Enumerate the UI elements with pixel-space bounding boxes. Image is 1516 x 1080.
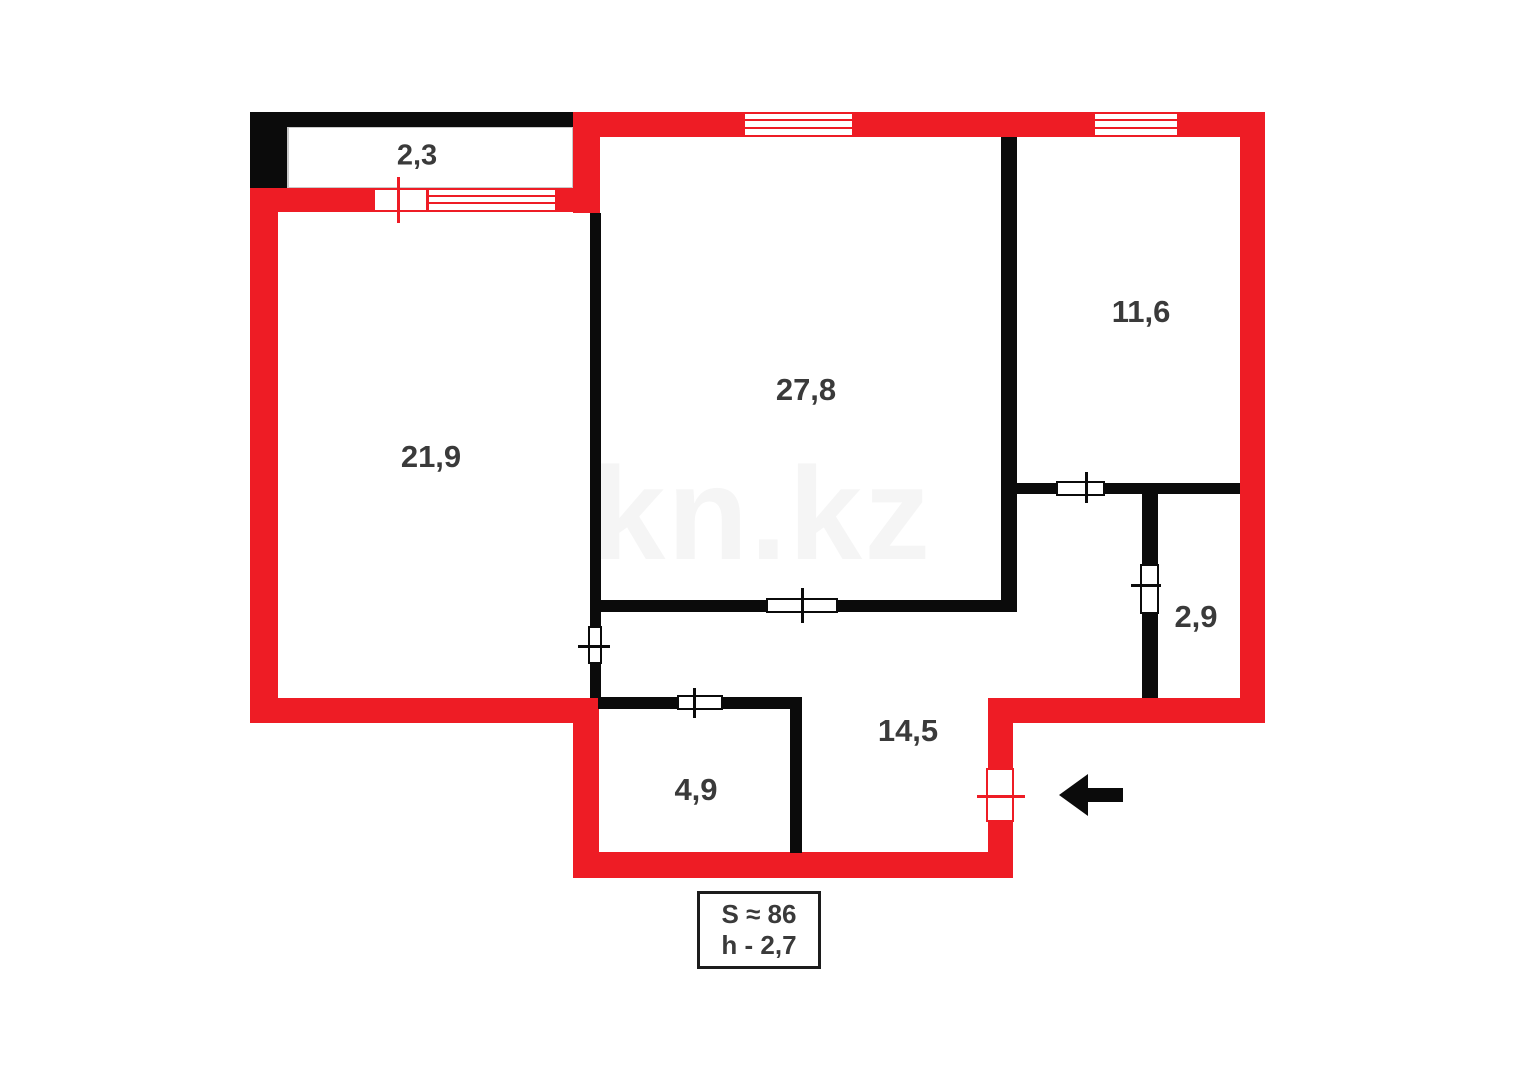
room-label-bedroom: 11,6 [1112,294,1171,330]
room-label-balcony: 2,3 [397,140,437,173]
info-box: S ≈ 86 h - 2,7 [697,891,821,969]
wall-kitchen-right [790,697,802,853]
door-closet-icon [1140,564,1159,614]
window-mainroom-icon [745,112,852,137]
wall-exterior-bottom [573,852,1013,878]
watermark-text: kn.kz [592,448,932,580]
room-label-hallway: 14,5 [878,713,938,749]
entrance-arrow-icon [1059,772,1125,823]
info-area-text: S ≈ 86 [722,900,797,929]
room-label-closet: 2,9 [1174,599,1217,635]
door-mainroom-tick-icon [801,588,804,623]
floor-plan: kn.kz 2,3 21,9 27,8 11,6 2,9 14,5 4,9 [0,0,1516,1080]
wall-bedroom-bottom [1001,483,1240,494]
wall-balcony-top [250,112,573,127]
wall-exterior-right [1240,112,1265,723]
wall-exterior-left [250,188,278,723]
door-bedroom-tick-icon [1085,472,1088,503]
door-balcony-tick-icon [397,177,400,223]
door-entrance-tick-icon [977,795,1025,798]
door-balcony-icon [373,188,428,212]
room-label-living-room: 21,9 [401,439,461,475]
door-closet-tick-icon [1131,584,1161,587]
door-kitchen-icon [677,695,723,710]
wall-exterior-bottom-left [250,698,599,723]
wall-balcony-left-block [250,112,287,188]
window-bedroom-icon [1095,112,1177,137]
room-label-kitchen: 4,9 [674,772,717,808]
info-height-text: h - 2,7 [721,931,796,960]
room-label-main-room: 27,8 [776,372,836,408]
door-livingroom-tick-icon [578,645,610,648]
wall-mainroom-right [1001,137,1017,612]
window-balcony-icon [427,188,557,212]
wall-exterior-bottom-right [988,698,1265,723]
door-bedroom-icon [1056,481,1105,496]
door-kitchen-tick-icon [693,688,696,718]
